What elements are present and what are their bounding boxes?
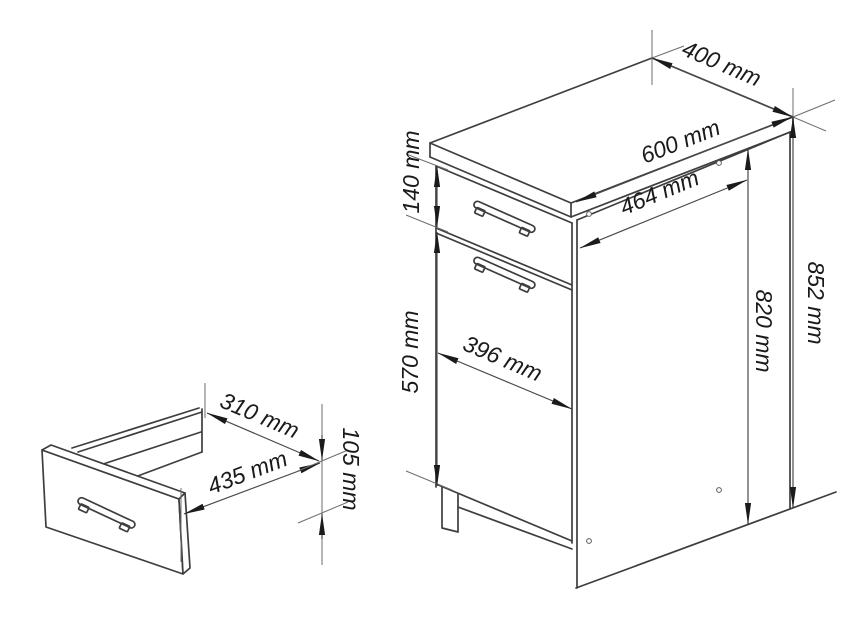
cabinet-drawer-handle: [471, 200, 536, 238]
screw-hole-front-top: [587, 212, 592, 217]
cabinet-figure: 400 mm 600 mm 464 mm 852 mm 820 mm: [397, 30, 836, 588]
drawer-door-gap-lower: [436, 233, 572, 290]
screw-hole-back-bottom: [717, 488, 722, 493]
dim-820: 820 mm: [748, 149, 777, 524]
dim-435: 435 mm: [181, 445, 320, 562]
dim-label-396: 396 mm: [459, 330, 546, 386]
dimension-diagram: 310 mm 435 mm 105 mm: [0, 0, 856, 619]
dim-600-extension-right: [793, 100, 835, 117]
dim-140-extension-bottom: [406, 215, 448, 232]
dim-label-140: 140 mm: [398, 130, 424, 213]
front-left-leg: [442, 487, 458, 532]
dim-310: 310 mm: [205, 383, 319, 461]
diagram-canvas: 310 mm 435 mm 105 mm: [0, 0, 856, 619]
screw-hole-front-bottom: [587, 539, 592, 544]
dim-570: 570 mm: [397, 232, 452, 490]
screw-hole-back-top: [717, 161, 722, 166]
dim-label-820: 820 mm: [751, 289, 777, 372]
dim-852: 852 mm: [793, 117, 829, 508]
drawer-box-rim-inner: [78, 412, 202, 452]
dim-label-570: 570 mm: [397, 310, 423, 393]
drawer-figure: 310 mm 435 mm 105 mm: [42, 383, 364, 574]
dim-label-435: 435 mm: [204, 445, 291, 499]
dim-400-extension-right-diagonal: [793, 117, 826, 131]
dim-label-105: 105 mm: [338, 427, 364, 510]
floor-line: [576, 492, 836, 588]
drawer-box-rim-outer: [72, 408, 199, 448]
dim-105: 105 mm: [298, 404, 364, 565]
dim-label-852: 852 mm: [803, 261, 829, 344]
dim-570-extension-bottom: [406, 471, 452, 490]
plinth-rail-edge: [458, 507, 572, 549]
dim-396: 396 mm: [438, 330, 572, 409]
